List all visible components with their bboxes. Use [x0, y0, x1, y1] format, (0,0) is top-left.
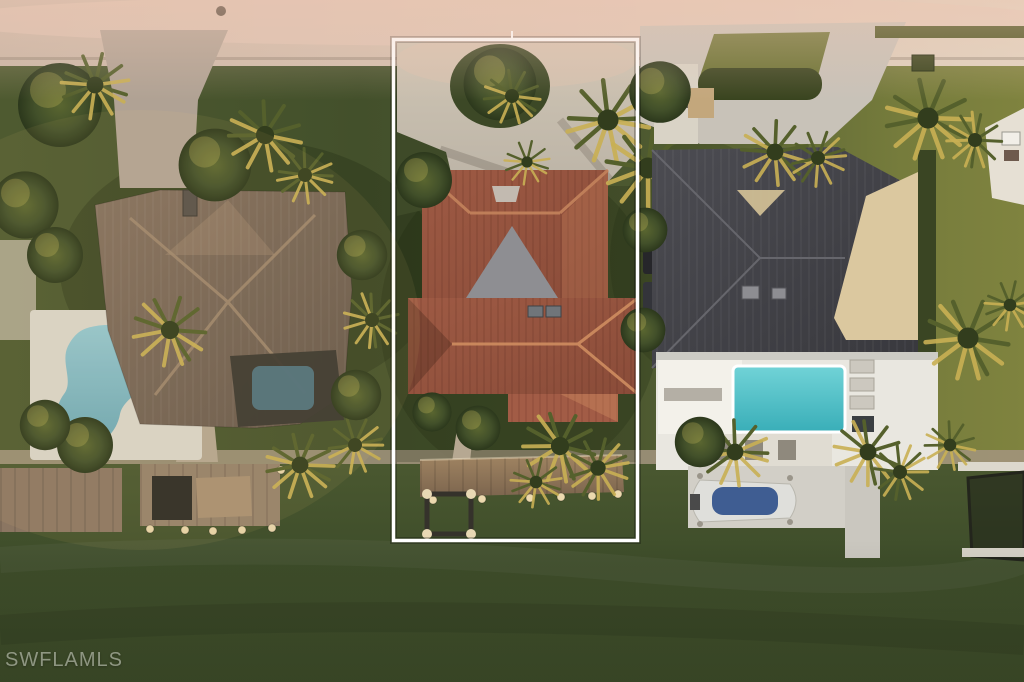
center-entry-walk: [492, 186, 520, 202]
boat-interior: [712, 487, 778, 515]
right-pool: [733, 366, 845, 432]
boat-engine: [690, 494, 700, 510]
pool-loungers: [850, 360, 874, 409]
right-side-hedge: [918, 150, 936, 362]
deck-shadow: [656, 352, 938, 360]
watermark: SWFLAMLS: [5, 649, 123, 672]
bottom-vignette: [0, 540, 1024, 682]
patio-item: [1002, 132, 1020, 145]
aerial-photo: SWFLAMLS: [0, 0, 1024, 682]
center-house: [408, 170, 638, 422]
sunset-haze: [0, 0, 1024, 100]
aerial-scene: [0, 0, 1024, 682]
lift-beam-top: [958, 462, 1024, 471]
patio-item: [1004, 150, 1019, 161]
cabana-counter: [664, 388, 722, 401]
